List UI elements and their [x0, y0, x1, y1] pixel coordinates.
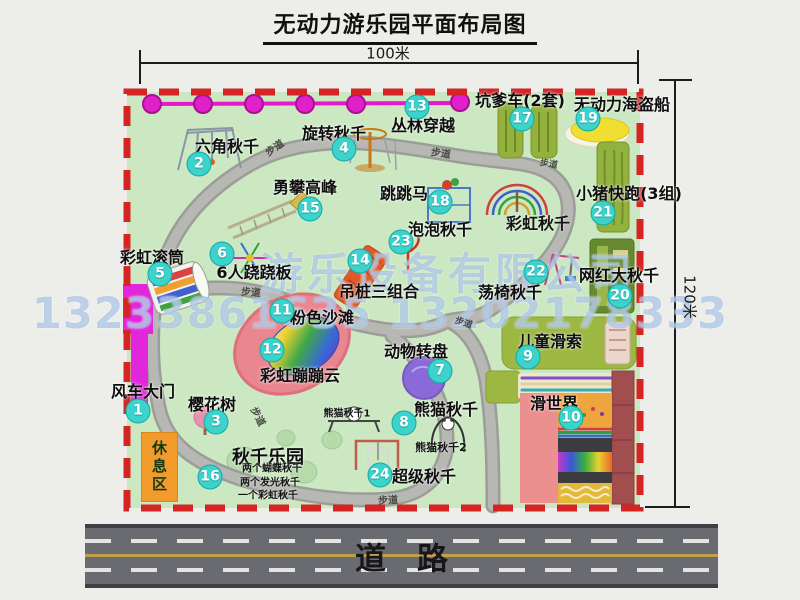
map-sublabel: 熊猫秋千2 — [415, 439, 467, 455]
poi-label-8: 熊猫秋千 — [414, 396, 478, 420]
poi-label-14: 吊桩三组合 — [339, 278, 419, 302]
road: 道 路 — [85, 524, 718, 588]
park-plan-page: 游乐设备有限公司 13233861635 13202178333 休息区 风车大… — [0, 0, 800, 600]
poi-badge-12: 12 — [260, 338, 285, 363]
map-sublabel: 彩虹秋千 — [506, 210, 570, 234]
poi-badge-9: 9 — [516, 345, 541, 370]
poi-badge-5: 5 — [148, 262, 173, 287]
poi-badge-23: 23 — [389, 230, 414, 255]
poi-badge-4: 4 — [332, 137, 357, 162]
poi-label-15: 勇攀高峰 — [273, 174, 337, 198]
walkway-label: 步道 — [430, 143, 452, 161]
poi-label-11: 粉色沙滩 — [290, 304, 354, 328]
poi-badge-3: 3 — [204, 410, 229, 435]
rest-area-box: 休息区 — [141, 432, 178, 502]
map-sublabel: 两个蝴蝶秋千 — [242, 460, 302, 475]
walkway-label: 步道 — [241, 283, 262, 299]
rest-area-label: 休息区 — [149, 440, 170, 494]
poi-label-18: 跳跳马 — [380, 180, 428, 204]
poi-badge-21: 21 — [591, 201, 616, 226]
poi-badge-1: 1 — [126, 399, 151, 424]
walkway-label: 步道 — [378, 491, 399, 507]
width-dimension-label: 100米 — [366, 43, 410, 64]
poi-label-1: 风车大门 — [111, 378, 175, 402]
road-label: 道 路 — [85, 534, 718, 579]
poi-badge-10: 10 — [559, 406, 584, 431]
poi-badge-6: 6 — [210, 242, 235, 267]
poi-badge-14: 14 — [348, 249, 373, 274]
poi-badge-13: 13 — [405, 95, 430, 120]
poi-badge-19: 19 — [576, 107, 601, 132]
poi-label-12: 彩虹蹦蹦云 — [260, 362, 340, 386]
poi-label-23: 泡泡秋千 — [408, 216, 472, 240]
poi-badge-15: 15 — [298, 197, 323, 222]
poi-badge-7: 7 — [428, 359, 453, 384]
page-title-text: 无动力游乐园平面布局图 — [263, 7, 536, 45]
poi-label-24: 超级秋千 — [392, 463, 456, 487]
poi-badge-20: 20 — [608, 284, 633, 309]
poi-badge-24: 24 — [368, 463, 393, 488]
poi-badge-22: 22 — [524, 260, 549, 285]
height-dimension-label: 120米 — [680, 275, 701, 319]
poi-label-21: 小猪快跑(3组) — [576, 180, 682, 204]
poi-badge-2: 2 — [187, 152, 212, 177]
poi-badge-8: 8 — [392, 411, 417, 436]
poi-badge-17: 17 — [510, 107, 535, 132]
poi-label-20: 网红大秋千 — [579, 262, 659, 286]
map-sublabel: 熊猫秋千1 — [324, 405, 371, 420]
map-sublabel: 一个彩虹秋千 — [238, 487, 298, 502]
poi-badge-11: 11 — [270, 299, 295, 324]
poi-badge-16: 16 — [198, 465, 223, 490]
page-title: 无动力游乐园平面布局图 — [0, 7, 800, 45]
poi-badge-18: 18 — [428, 190, 453, 215]
